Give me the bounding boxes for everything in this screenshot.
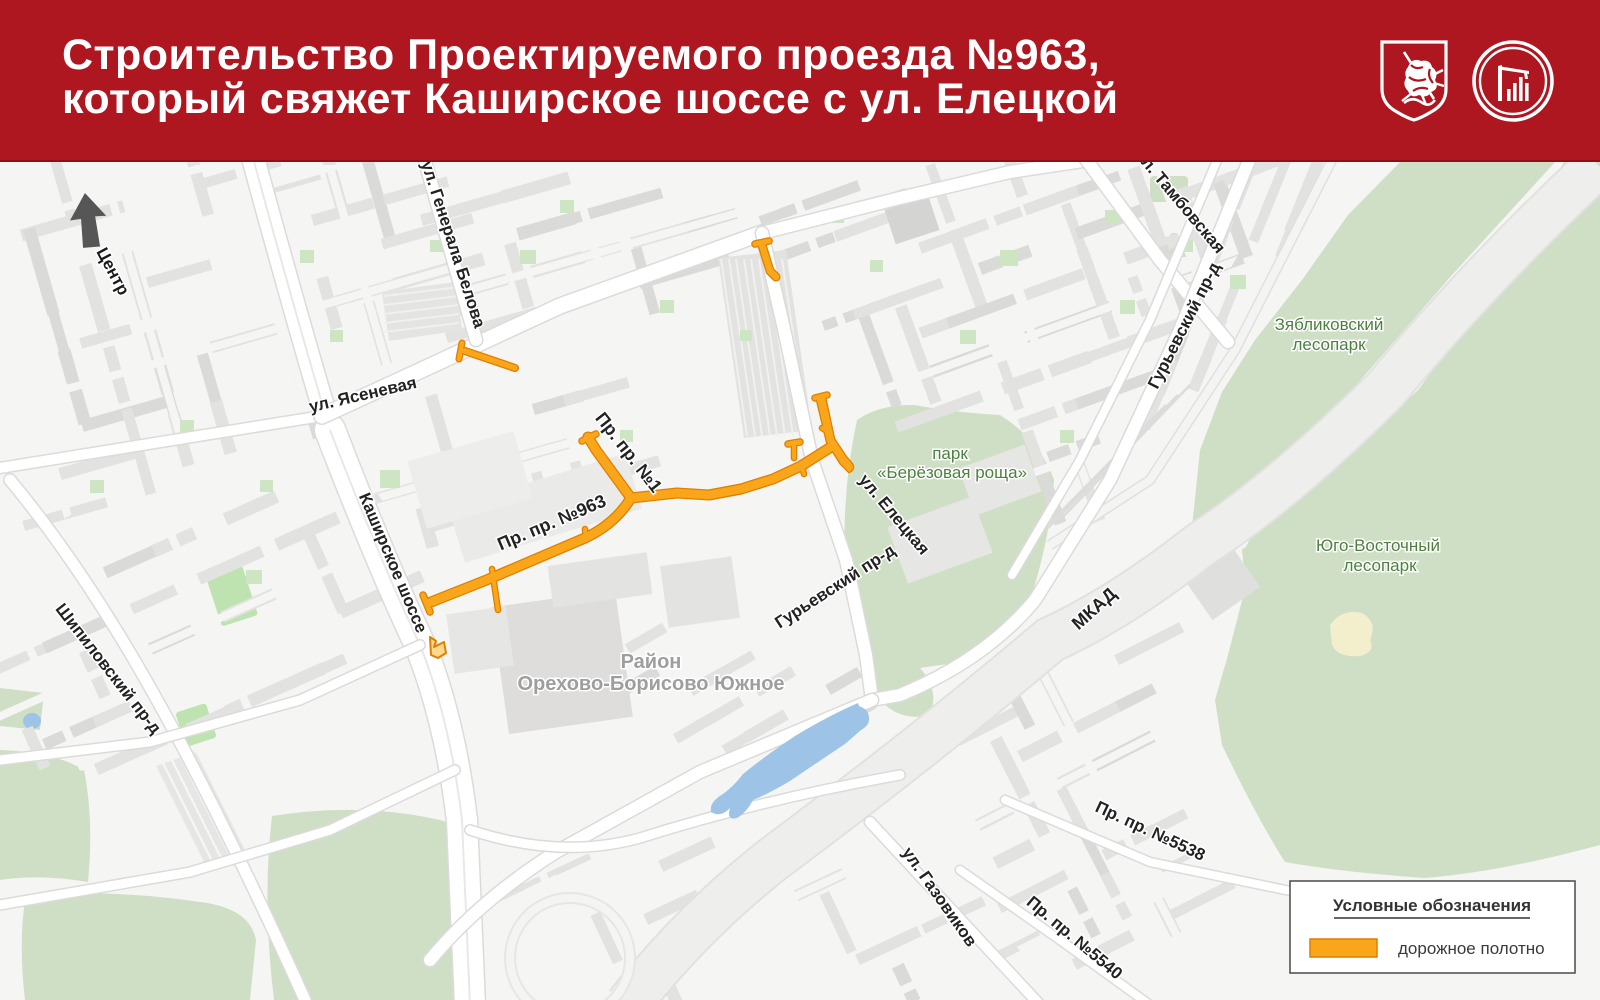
svg-text:Район: Район xyxy=(621,651,682,673)
svg-text:парк: парк xyxy=(932,444,968,463)
svg-text:Зябликовский: Зябликовский xyxy=(1275,315,1384,334)
svg-text:Условные обозначения: Условные обозначения xyxy=(1333,896,1531,915)
svg-text:лесопарк: лесопарк xyxy=(1343,556,1417,575)
svg-text:Орехово-Борисово Южное: Орехово-Борисово Южное xyxy=(517,673,784,695)
svg-text:лесопарк: лесопарк xyxy=(1292,335,1366,354)
svg-text:дорожное полотно: дорожное полотно xyxy=(1398,939,1545,958)
svg-text:Юго-Восточный: Юго-Восточный xyxy=(1316,536,1440,555)
svg-text:«Берёзовая роща»: «Берёзовая роща» xyxy=(877,463,1027,482)
